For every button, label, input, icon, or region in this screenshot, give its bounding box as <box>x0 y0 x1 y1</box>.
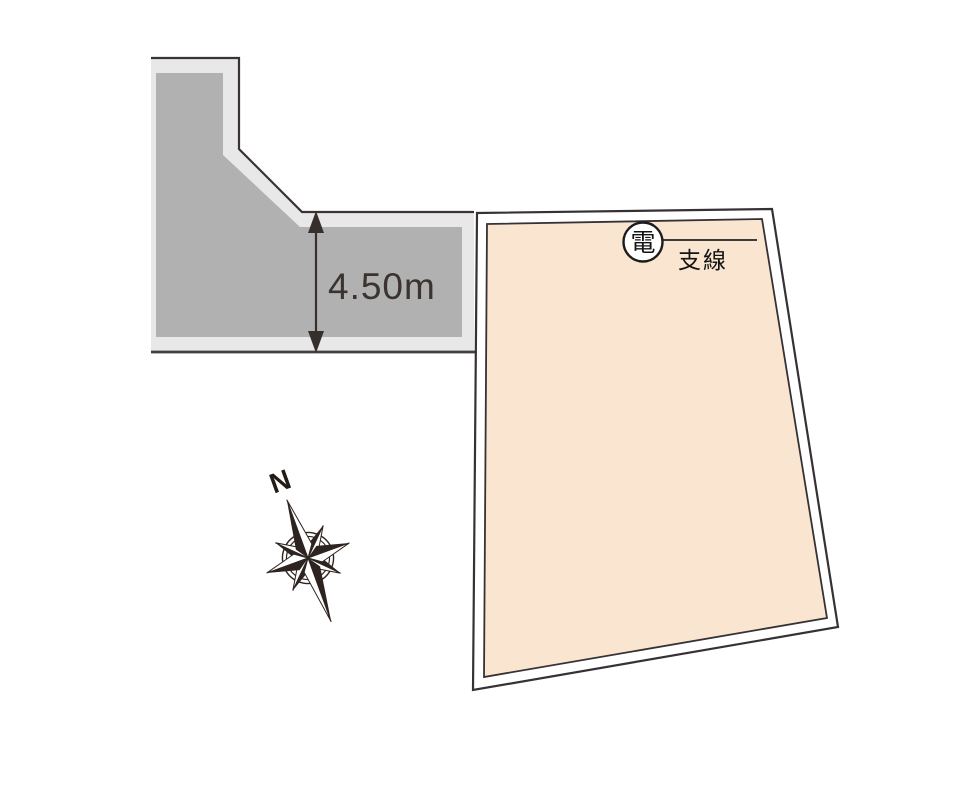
dimension-label: 4.50m <box>328 266 436 307</box>
guy-wire-label: 支線 <box>678 247 728 273</box>
compass-rose-icon: N <box>233 452 372 637</box>
pole-label: 電 <box>630 229 655 257</box>
site-plan-canvas: 4.50m 電 支線 <box>0 0 960 789</box>
site-plan-svg: 4.50m 電 支線 <box>0 0 960 789</box>
north-label: N <box>265 463 295 499</box>
